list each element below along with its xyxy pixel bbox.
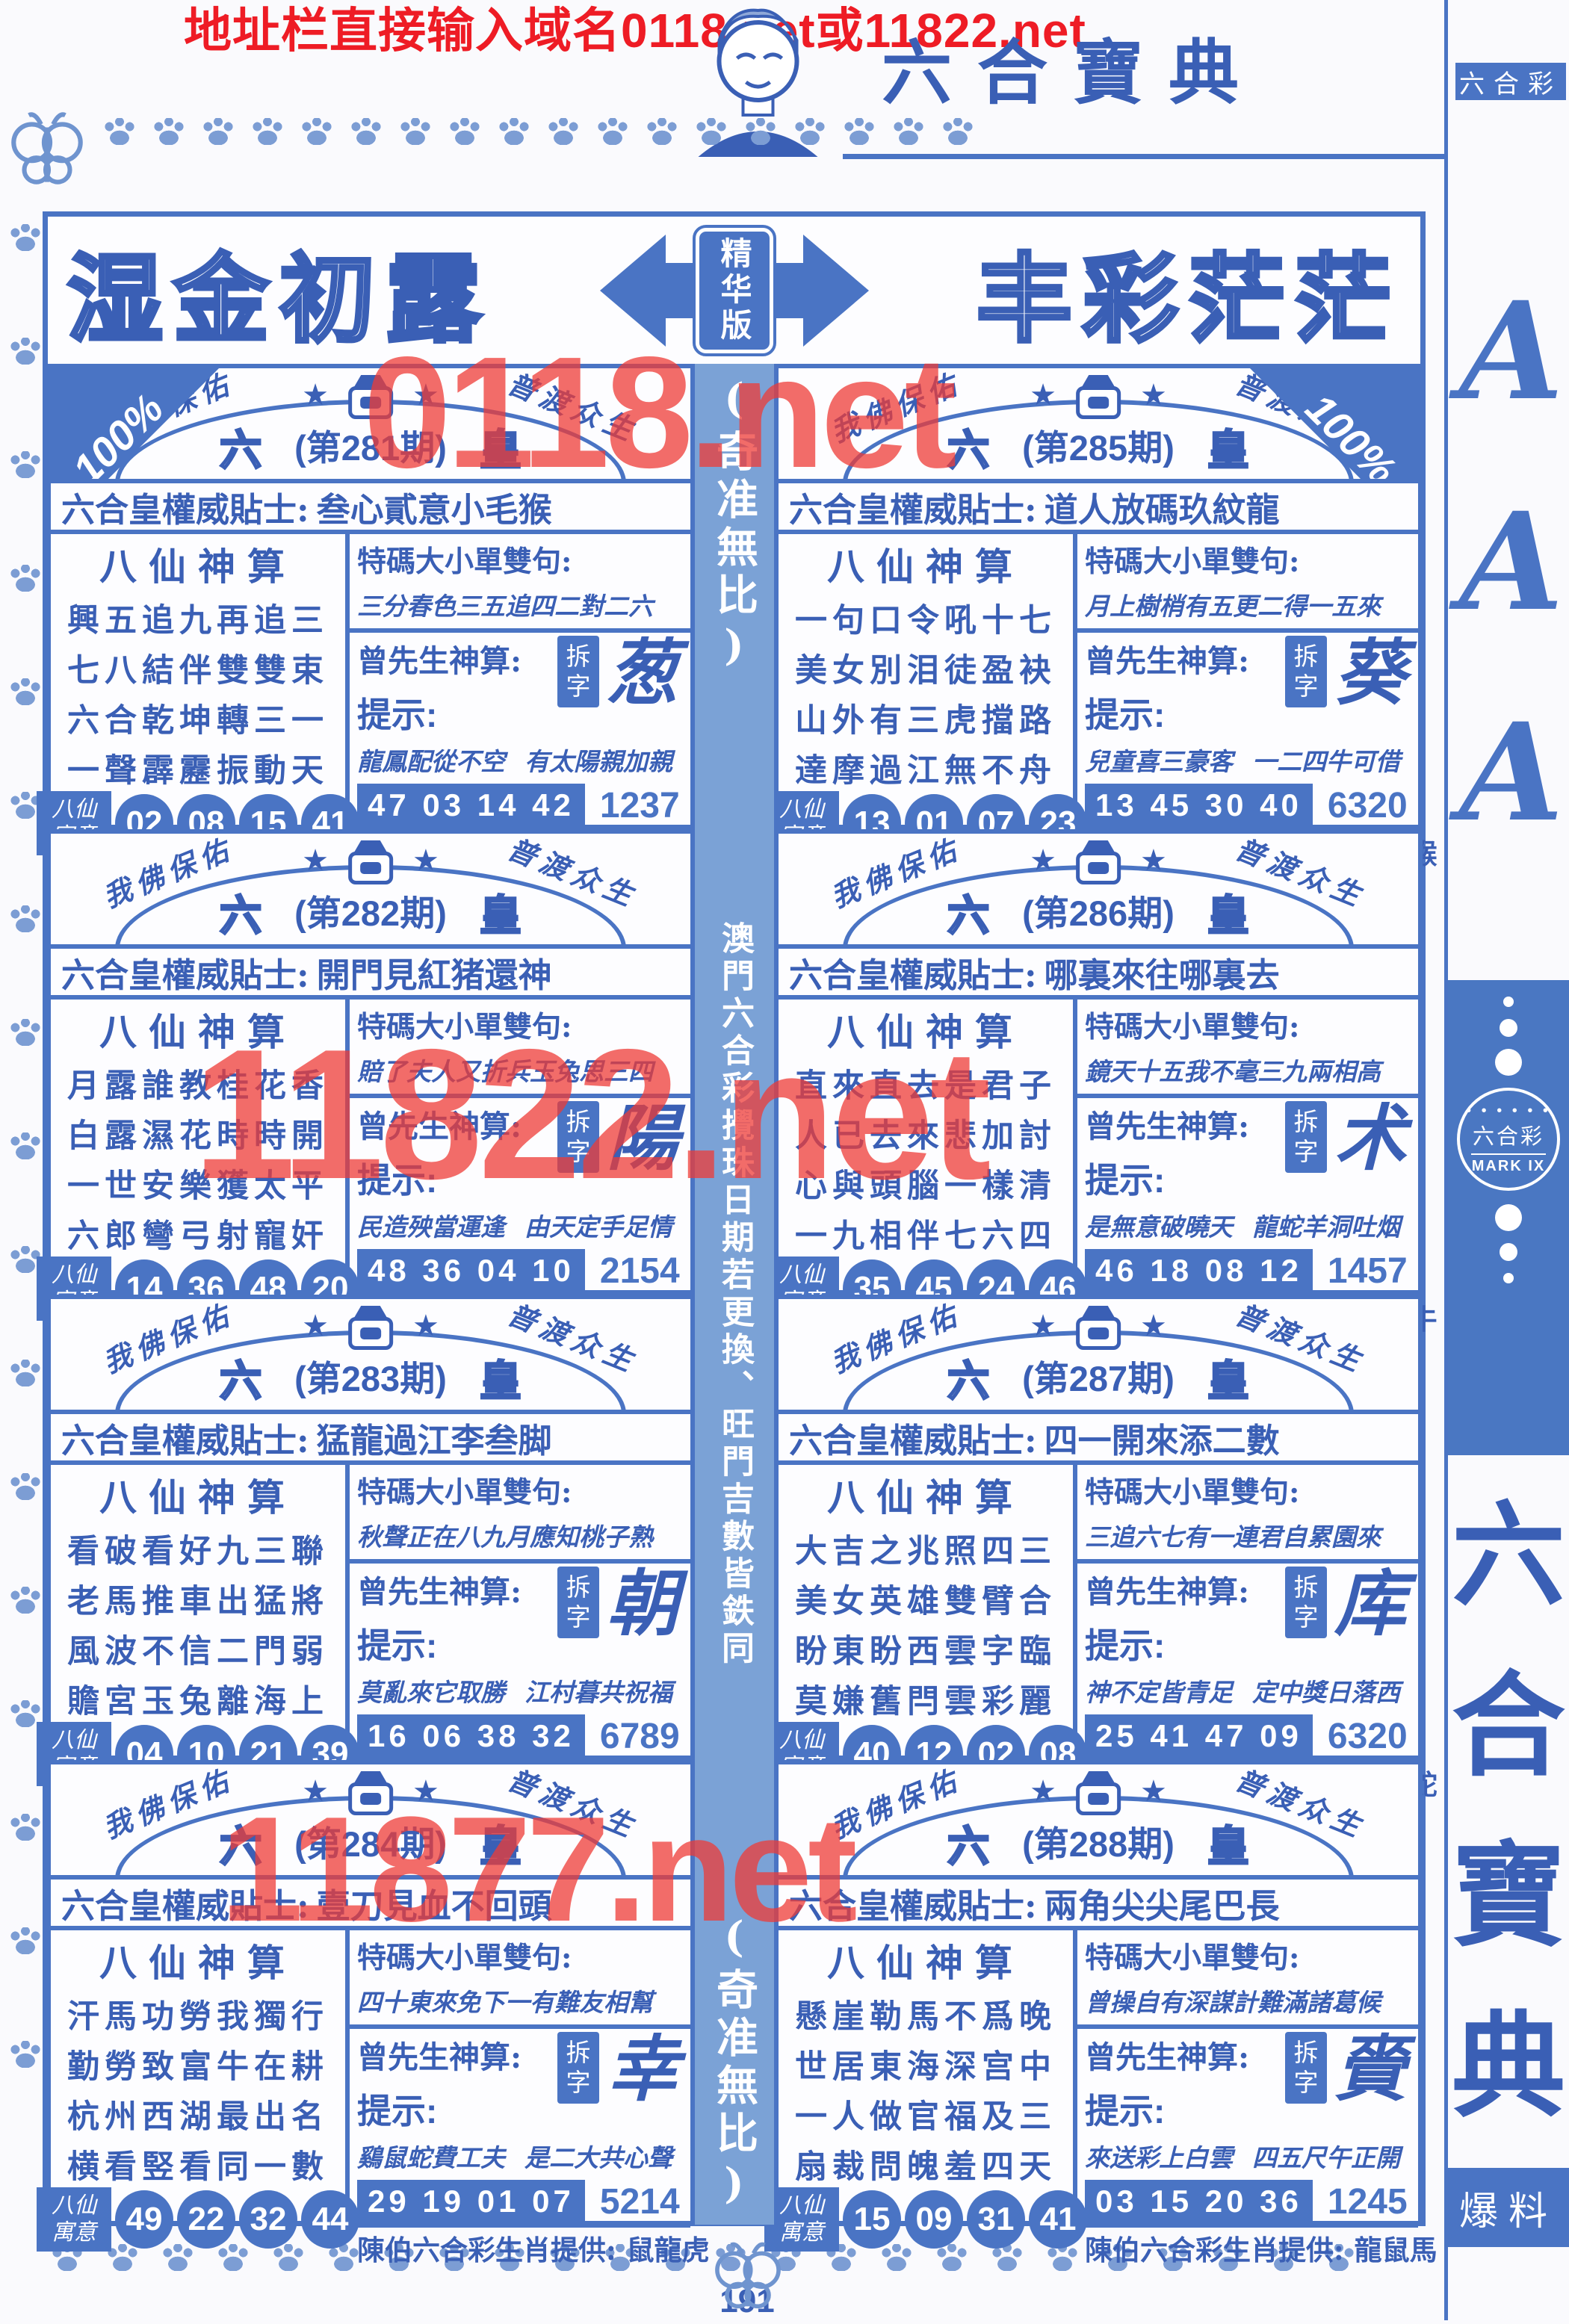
hint-right: 龍蛇羊洞吐烟 [1252,1207,1400,1243]
verse-text: 三分春色三五追四二對二六 [357,586,683,622]
chai-character: 库 [1334,1567,1406,1641]
butterfly-icon [1,103,93,200]
watermark-11877: 11877.net [220,1784,853,1956]
chai-character: 幸 [607,2032,678,2107]
hint-right: 是二大共心聲 [524,2138,672,2174]
paw-icon [253,118,282,145]
zodiac-label: 陳伯六合彩生肖提供: [357,2228,616,2268]
tip-label: 六合皇權威貼士: [61,1413,309,1462]
number-ball: 22 [177,2190,235,2249]
star-icon: ★ [1140,378,1167,412]
paw-icon [10,224,40,251]
poem-line: 杭州西湖最出名 [67,2091,329,2137]
star-icon: ★ [302,378,329,412]
zeng-section: 曾先生神算: 提示: 拆字 葱 龍鳳配從不空有太陽親加親 47 03 14 42… [350,633,690,827]
hint-right: 四五尺午正開 [1252,2138,1400,2174]
number-ball: 49 [115,2190,173,2249]
star-icon: ★ [302,843,329,878]
baxian-tag-top: 八仙 [52,796,96,823]
poem-line: 贍宮玉兔離海上 [67,1676,329,1722]
chai-top: 拆 [1294,1572,1319,1602]
poem-line: 七八結伴雙雙束 [67,645,329,691]
dot-icon [1500,1243,1517,1261]
star-icon: ★ [1030,1309,1056,1343]
glyph-liu: 六 [220,426,261,475]
numbers-box: 48 36 04 10 [357,1249,585,1292]
zeng-section: 曾先生神算: 提示: 拆字 葵 兒童喜三豪客一二四牛可借 13 45 30 40… [1077,633,1418,827]
baxian-title: 八仙神算 [99,1468,297,1522]
baxian-title: 八仙神算 [827,1933,1024,1987]
baxian-tag-top: 八仙 [779,796,824,823]
hint-right: 一二四牛可借 [1252,742,1400,778]
verse-text: 月上樹梢有五更二得一五來 [1085,586,1411,622]
hint-left: 莫亂來它取勝 [357,1673,505,1708]
header-rule [843,154,1445,159]
chai-top: 拆 [1294,2038,1319,2068]
number-ball: 32 [239,2190,297,2249]
numbers-box: 47 03 14 42 [357,784,585,827]
paw-icon [10,1360,40,1386]
numbers-box: 16 06 38 32 [357,1714,585,1758]
zeng-section: 曾先生神算: 提示: 拆字 术 是無意破曉天龍蛇羊洞吐烟 46 18 08 12… [1077,1098,1418,1292]
poem-line: 興五追九再追三 [67,595,329,641]
verse-text: 秋聲正在八九月應知桃子熟 [357,1517,683,1553]
poem-line: 達摩過江無不舟 [795,745,1056,791]
house-icon [348,852,393,884]
numbers-box: 25 41 47 09 [1085,1714,1313,1758]
house-icon [348,1317,393,1350]
glyph-liu: 六 [947,891,989,941]
hint-label: 提示: [1085,2084,1278,2134]
zeng-label: 曾先生神算: [357,636,550,681]
chai-top: 拆 [566,1572,591,1602]
poem-line: 横看竪看同一數 [67,2141,329,2187]
verse-label: 特碼大小單雙句: [1085,539,1411,580]
hint-right: 江村暮共祝福 [524,1673,672,1708]
panel-287: 我佛保佑 普渡众生 ★★ 六(第287期)皇 六合皇權威貼士:四一開來添二數 八… [774,1295,1423,1760]
paw-icon [450,118,480,145]
paw-icon [105,118,134,145]
chai-character: 葵 [1334,636,1406,710]
chai-character: 葱 [607,636,678,710]
hint-label: 提示: [357,688,550,737]
paw-icon [894,118,923,145]
dot-icon [1503,1273,1514,1283]
verse-section: 特碼大小單雙句: 三分春色三五追四二對二六 [350,534,690,633]
sidebar-bottom-label: 爆料 [1448,2168,1569,2247]
tip-label: 六合皇權威貼士: [61,948,309,997]
chaizi-box: 拆字 [1285,2032,1327,2104]
verse-section: 特碼大小單雙句: 月上樹梢有五更二得一五來 [1077,534,1418,633]
panel-arc-header: 我佛保佑 普渡众生 ★★ 六(第287期)皇 [779,1299,1418,1410]
tip-row: 六合皇權威貼士:開門見紅猪還神 [51,944,690,1000]
tip-text: 四一開來添二數 [1045,1413,1280,1462]
mark-six-logo: • • • • • • 六合彩 MARK IX [1457,1088,1560,1191]
sidebar-aaa: A A A [1455,247,1568,879]
baxian-tag-top: 八仙 [52,1262,96,1289]
period-label: (第287期) [1022,1359,1175,1398]
paw-icon [351,118,381,145]
chai-top: 拆 [1294,1107,1319,1137]
zodiac-text: 鼠龍虎 [627,2228,710,2268]
verse-section: 特碼大小單雙句: 三追六七有一連君自累園來 [1077,1465,1418,1564]
star-icon: ★ [1140,1309,1167,1343]
code-number: 6320 [1328,1716,1408,1757]
logo-title: 六合彩 [1473,1119,1544,1150]
poem-line: 扇裁問魄羞四天 [795,2141,1056,2187]
hint-left: 來送彩上白雲 [1085,2138,1233,2174]
paw-border-left [10,224,40,2068]
glyph-huang: 皇 [1207,891,1249,941]
logo-dot-arc: • • • • • • [1466,1104,1551,1118]
baxian-section: 八仙神算 一句口令吼十七 美女別泪徒盈袂 山外有三虎擋路 達摩過江無不舟 八仙寓… [779,534,1077,825]
code-number: 1457 [1328,1251,1408,1292]
paw-icon [400,118,430,145]
panel-arc-header: 我佛保佑 普渡众生 ★★ 六(第288期)皇 [779,1764,1418,1875]
butterfly-icon [706,2237,790,2320]
zeng-section: 曾先生神算: 提示: 拆字 幸 鷄鼠蛇費工夫是二大共心聲 29 19 01 07… [350,2029,690,2223]
baxian-section: 八仙神算 大吉之兆照四三 美女英雄雙臂合 盼東盼西雲字臨 莫嫌舊閂雲彩麗 八仙寓… [779,1465,1077,1756]
logo-rule [1471,1153,1546,1155]
baxian-title: 八仙神算 [99,537,297,591]
number-ball: 09 [905,2190,963,2249]
hint-right: 有太陽親加親 [524,742,672,778]
paw-icon [10,338,40,365]
paw-icon [548,118,578,145]
chai-top: 拆 [1294,642,1319,672]
star-icon: ★ [1030,843,1056,878]
paw-icon [10,451,40,478]
chaizi-box: 拆字 [1285,636,1327,707]
glyph-huang: 皇 [1207,1357,1249,1406]
baxian-section: 八仙神算 汗馬功勞我獨行 勤勞致富牛在耕 杭州西湖最出名 横看竪看同一數 八仙寓… [51,1930,350,2221]
number-ball: 15 [843,2190,901,2249]
dot-icon [1500,1019,1517,1037]
glyph-huang: 皇 [1207,426,1249,475]
paw-icon [10,905,40,932]
paw-icon [10,792,40,819]
tip-row: 六合皇權威貼士:猛龍過江李叁脚 [51,1410,690,1465]
tip-text: 兩角尖尖尾巴長 [1045,1879,1280,1927]
chai-bottom: 字 [566,2068,591,2098]
chai-bottom: 字 [1294,2068,1319,2098]
scanned-lottery-page: { "colors":{"accent_blue":"#4a74c4","tex… [0,0,1569,2320]
glyph-liu: 六 [947,1822,989,1871]
chai-character: 朝 [607,1567,678,1641]
code-number: 6320 [1328,785,1408,826]
tip-label: 六合皇權威貼士: [789,948,1037,997]
number-ball: 31 [967,2190,1025,2249]
panel-arc-header: 我佛保佑 普渡众生 ★★ 六(第286期)皇 [779,834,1418,944]
poem-line: 盼東盼西雲字臨 [795,1626,1056,1672]
poem-line: 一聲霹靂振動天 [67,745,329,791]
paw-icon [10,1927,40,1954]
star-icon: ★ [1030,1774,1056,1809]
panel-288: 我佛保佑 普渡众生 ★★ 六(第288期)皇 六合皇權威貼士:兩角尖尖尾巴長 八… [774,1760,1423,2225]
zeng-section: 曾先生神算: 提示: 拆字 库 神不定皆青足定中獎日落西 25 41 47 09… [1077,1564,1418,1758]
paw-icon [10,1019,40,1046]
poem-line: 懸崖勒馬不爲晚 [795,1991,1056,2037]
glyph-liu: 六 [947,426,989,475]
verse-label: 特碼大小單雙句: [1085,1469,1411,1511]
chaizi-box: 拆字 [1285,1567,1327,1638]
dot-icon [1495,1049,1522,1076]
watermark-11822: 11822.net [193,1007,987,1221]
letter-a: A [1455,668,1568,879]
title-char: 寶 [1449,1811,1568,1981]
tip-text: 開門見紅猪還神 [317,948,552,997]
baxian-section: 八仙神算 興五追九再追三 七八結伴雙雙束 六合乾坤轉三一 一聲霹靂振動天 八仙寓… [51,534,350,825]
numbers-box: 03 15 20 36 [1085,2180,1313,2223]
paw-icon [10,1473,40,1500]
dot-icon [1495,1204,1522,1231]
baxian-tag-bottom: 寓意 [52,2219,96,2246]
paw-icon [10,1246,40,1273]
zeng-label: 曾先生神算: [1085,1567,1278,1611]
paw-icon [844,118,874,145]
hint-label: 提示: [357,1619,550,1668]
letter-a: A [1455,247,1568,457]
period-label: (第285期) [1022,428,1175,468]
verse-label: 特碼大小單雙句: [1085,1004,1411,1046]
poem-line: 山外有三虎擋路 [795,695,1056,741]
star-icon: ★ [412,1309,439,1343]
paw-icon [302,118,332,145]
zodiac-label: 陳伯六合彩生肖提供: [1085,2228,1344,2268]
code-number: 1237 [600,785,680,826]
glyph-liu: 六 [220,1357,261,1406]
glyph-liu: 六 [220,891,261,941]
zeng-section: 曾先生神算: 提示: 拆字 賫 來送彩上白雲四五尺午正開 03 15 20 36… [1077,2029,1418,2223]
chaizi-box: 拆字 [1285,1101,1327,1173]
zeng-label: 曾先生神算: [1085,2032,1278,2077]
glyph-liu: 六 [947,1357,989,1406]
tip-label: 六合皇權威貼士: [61,483,309,531]
zeng-label: 曾先生神算: [1085,636,1278,681]
panel-arc-header: 我佛保佑 普渡众生 ★★ 六(第282期)皇 [51,834,690,944]
verse-label: 特碼大小單雙句: [357,539,683,580]
logo-mark: MARK IX [1472,1158,1545,1175]
title-char: 六 [1449,1470,1568,1640]
chai-top: 拆 [566,2038,591,2068]
verse-text: 四十東來免下一有難友相幫 [357,1983,683,2018]
paw-icon [499,118,529,145]
letter-a: A [1455,457,1568,668]
hint-left: 兒童喜三豪客 [1085,742,1233,778]
baxian-tag-top: 八仙 [52,1727,96,1754]
paw-icon [10,1814,40,1841]
poem-line: 老馬推車出猛將 [67,1575,329,1622]
star-icon: ★ [412,843,439,878]
period-label: (第282期) [294,893,447,933]
paw-icon [10,1132,40,1159]
poem-line: 美女別泪徒盈袂 [795,645,1056,691]
poem-line: 莫嫌舊閂雲彩麗 [795,1676,1056,1722]
title-char: 合 [1449,1640,1568,1811]
paw-icon [598,118,628,145]
verse-text: 曾操自有深謀計難滿諸葛候 [1085,1983,1411,2018]
hint-left: 鷄鼠蛇費工夫 [357,2138,505,2174]
code-number: 1245 [1328,2181,1408,2222]
zodiac-section: 陳伯六合彩生肖提供:鼠龍虎 [350,2223,690,2268]
chai-bottom: 字 [566,1602,591,1632]
tip-row: 六合皇權威貼士:四一開來添二數 [779,1410,1418,1465]
zodiac-section: 陳伯六合彩生肖提供:龍鼠馬 [1077,2223,1418,2268]
poem-line: 風波不信二門弱 [67,1626,329,1672]
verse-text: 鏡天十五我不毫三九兩相高 [1085,1052,1411,1088]
numbers-box: 29 19 01 07 [357,2180,585,2223]
paw-icon [696,118,726,145]
hint-label: 提示: [357,2084,550,2134]
poem-line: 勤勞致富牛在耕 [67,2041,329,2087]
hint-label: 提示: [1085,1153,1278,1203]
baxian-section: 八仙神算 懸崖勒馬不爲晚 世居東海深宫中 一人做官福及三 扇裁問魄羞四天 八仙寓… [779,1930,1077,2221]
baxian-tag-top: 八仙 [779,1262,824,1289]
chai-top: 拆 [566,642,591,672]
period-label: (第288期) [1022,1824,1175,1864]
star-icon: ★ [302,1309,329,1343]
zeng-label: 曾先生神算: [357,2032,550,2077]
period-label: (第283期) [294,1359,447,1398]
paw-icon [10,678,40,705]
chaizi-box: 拆字 [557,636,599,707]
paw-icon [154,118,184,145]
house-icon [1076,386,1121,419]
paw-icon [10,1587,40,1614]
poem-line: 六合乾坤轉三一 [67,695,329,741]
code-number: 2154 [600,1251,680,1292]
paw-icon [647,118,677,145]
panel-283: 我佛保佑 普渡众生 ★★ 六(第283期)皇 六合皇權威貼士:猛龍過江李叁脚 八… [46,1295,695,1760]
numbers-box: 13 45 30 40 [1085,784,1313,827]
verse-text: 三追六七有一連君自累園來 [1085,1517,1411,1553]
sidebar-top-label: 六合彩 [1455,63,1566,100]
hint-label: 提示: [1085,1619,1278,1668]
chai-bottom: 字 [1294,672,1319,701]
baxian-tag-top: 八仙 [779,2193,824,2219]
tip-row: 六合皇權威貼士:兩角尖尖尾巴長 [779,1875,1418,1930]
poem-line: 汗馬功勞我獨行 [67,1991,329,2037]
poem-line: 一人做官福及三 [795,2091,1056,2137]
baxian-title: 八仙神算 [827,537,1024,591]
sidebar-vertical-title: 六 合 寶 典 [1449,1470,1568,2151]
poem-line: 看破看好九三聯 [67,1525,329,1572]
period-label: (第286期) [1022,893,1175,933]
house-icon [1076,852,1121,884]
strip-bottom-text: (奇准無比) [705,1912,765,2214]
hint-left: 是無意破曉天 [1085,1207,1233,1243]
chai-bottom: 字 [566,672,591,701]
paw-icon [943,118,973,145]
numbers-box: 46 18 08 12 [1085,1249,1313,1292]
star-icon: ★ [1030,378,1056,412]
verse-label: 特碼大小單雙句: [1085,1935,1411,1977]
verse-label: 特碼大小單雙句: [357,1469,683,1511]
paw-icon [10,1700,40,1727]
baxian-tag-top: 八仙 [779,1727,824,1754]
verse-section: 特碼大小單雙句: 曾操自有深謀計難滿諸葛候 [1077,1930,1418,2029]
paw-icon [10,2041,40,2068]
tip-label: 六合皇權威貼士: [789,1413,1037,1462]
panel-arc-header: 我佛保佑 普渡众生 ★★ 六(第283期)皇 [51,1299,690,1410]
page-title: 六合寶典 [882,16,1264,118]
paw-icon [795,118,825,145]
paw-icon [10,565,40,592]
paw-icon [746,118,776,145]
house-icon [1076,1317,1121,1350]
chai-bottom: 字 [1294,1602,1319,1632]
paw-icon [203,118,233,145]
house-icon [1076,1782,1121,1815]
star-icon: ★ [1140,1774,1167,1809]
zeng-label: 曾先生神算: [1085,1101,1278,1146]
baxian-tag-top: 八仙 [52,2193,96,2219]
zodiac-text: 龍鼠馬 [1355,2228,1438,2268]
hint-label: 提示: [1085,688,1278,737]
tip-text: 道人放碼玖紋龍 [1045,483,1280,531]
dot-icon [1503,997,1514,1007]
tip-row: 六合皇權威貼士:哪裏來往哪裏去 [779,944,1418,1000]
glyph-huang: 皇 [480,1357,522,1406]
code-number: 6789 [600,1716,680,1757]
baxian-section: 八仙神算 看破看好九三聯 老馬推車出猛將 風波不信二門弱 贍宮玉兔離海上 八仙寓… [51,1465,350,1756]
chai-character: 賫 [1334,2032,1406,2107]
verse-section: 特碼大小單雙句: 鏡天十五我不毫三九兩相高 [1077,1000,1418,1098]
chai-character: 术 [1334,1101,1406,1176]
hint-left: 神不定皆青足 [1085,1673,1233,1708]
verse-section: 特碼大小單雙句: 秋聲正在八九月應知桃子熟 [350,1465,690,1564]
baxian-title: 八仙神算 [827,1468,1024,1522]
title-char: 典 [1449,1981,1568,2151]
chaizi-box: 拆字 [557,2032,599,2104]
poem-line: 大吉之兆照四三 [795,1525,1056,1572]
glyph-huang: 皇 [480,891,522,941]
baxian-tag: 八仙寓意 [37,2187,111,2252]
glyph-huang: 皇 [1207,1822,1249,1871]
star-icon: ★ [1140,843,1167,878]
hint-left: 龍鳳配從不空 [357,742,505,778]
hint-right: 定中獎日落西 [1252,1673,1400,1708]
zeng-section: 曾先生神算: 提示: 拆字 朝 莫亂來它取勝江村暮共祝福 16 06 38 32… [350,1564,690,1758]
banner-right-title: 丰彩茫茫 [977,222,1401,360]
zeng-label: 曾先生神算: [357,1567,550,1611]
watermark-0118: 0118.net [363,321,953,503]
tip-text: 猛龍過江李叁脚 [317,1413,552,1462]
tip-text: 哪裏來往哪裏去 [1045,948,1280,997]
code-number: 5214 [600,2181,680,2222]
chaizi-box: 拆字 [557,1567,599,1638]
poem-line: 一句口令吼十七 [795,595,1056,641]
poem-line: 美女英雄雙臂合 [795,1575,1056,1622]
paw-border-top [105,118,973,145]
sidebar-blue-block: • • • • • • 六合彩 MARK IX [1448,980,1569,1455]
chai-bottom: 字 [1294,1137,1319,1167]
poem-line: 世居東海深宫中 [795,2041,1056,2087]
